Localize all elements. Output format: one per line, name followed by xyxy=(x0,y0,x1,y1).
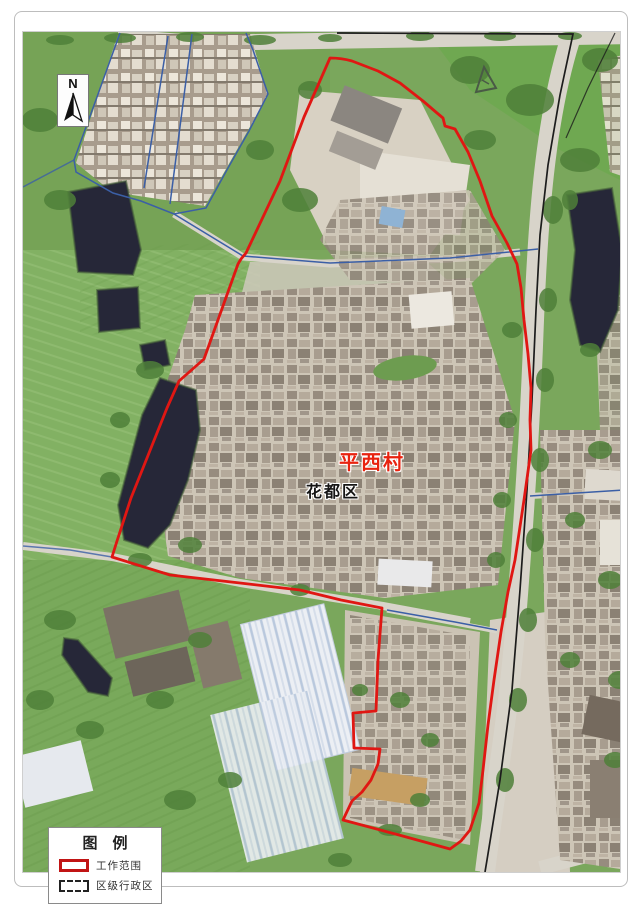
north-label: N xyxy=(58,76,88,91)
legend-item-admin-region: 区级行政区 xyxy=(59,878,161,893)
district-label: 花都区 xyxy=(306,478,360,502)
legend-item-label: 工作范围 xyxy=(96,858,142,873)
admin-region-swatch-icon xyxy=(59,880,89,892)
north-arrow: N xyxy=(57,74,89,127)
page: N 平西村 花都区 图 例 工作范围 区级行政区 xyxy=(0,0,640,904)
work-scope-swatch-icon xyxy=(59,859,89,872)
legend-item-work-scope: 工作范围 xyxy=(59,858,161,873)
satellite-map: N 平西村 花都区 图 例 工作范围 区级行政区 xyxy=(23,32,620,872)
legend-title: 图 例 xyxy=(49,832,161,853)
legend: 图 例 工作范围 区级行政区 xyxy=(48,827,162,904)
north-arrow-icon xyxy=(58,91,88,125)
legend-item-label: 区级行政区 xyxy=(96,878,154,893)
village-label: 平西村 xyxy=(339,446,405,475)
satellite-imagery xyxy=(23,32,620,872)
